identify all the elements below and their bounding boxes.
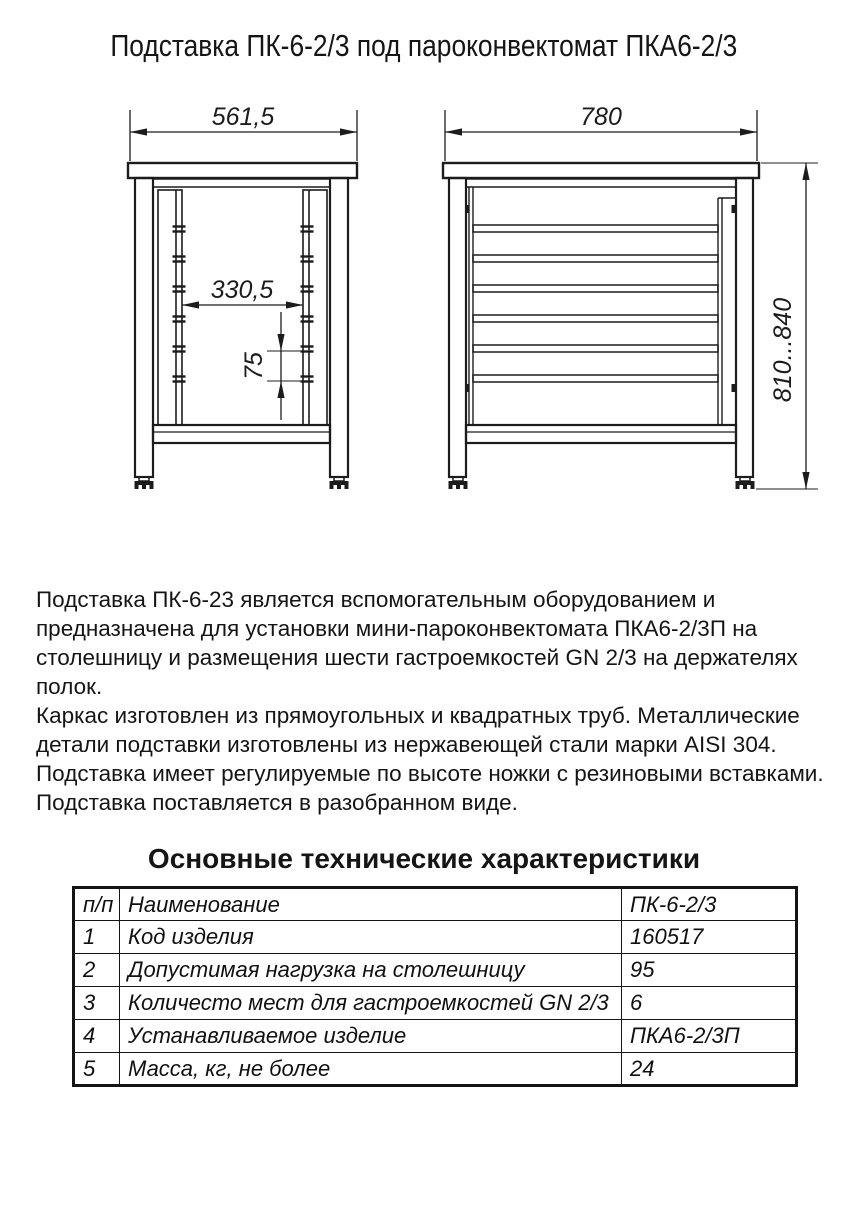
row-num: 3 (74, 987, 120, 1020)
side-under-rail (466, 179, 736, 187)
description-line: детали подставки изготовлены из нержавею… (36, 730, 848, 759)
row-name: Количесто мест для гастроемкостей GN 2/3 (120, 987, 622, 1020)
side-left-leg (449, 178, 466, 477)
row-name: Код изделия (120, 921, 622, 954)
front-shelf-channels (158, 190, 327, 425)
table-row: 1 Код изделия 160517 (74, 921, 797, 954)
row-num: 1 (74, 921, 120, 954)
front-feet (135, 477, 349, 489)
row-value: ПКА6-2/3П (622, 1020, 797, 1053)
technical-drawing: 561,5 330, (0, 90, 848, 500)
side-view-drawing: 780 (443, 103, 818, 489)
side-tabletop (443, 163, 759, 178)
side-height-label: 810...840 (769, 298, 797, 402)
row-name: Масса, кг, не более (120, 1053, 622, 1086)
row-num: 4 (74, 1020, 120, 1053)
table-row: 5 Масса, кг, не более 24 (74, 1053, 797, 1086)
side-shelf-rails (473, 225, 718, 382)
header-num: п/п (74, 888, 120, 921)
shelf-pitch-label: 75 (240, 352, 268, 380)
page-title: Подставка ПК-6-2/3 под пароконвектомат П… (0, 28, 848, 64)
page-title-text: Подставка ПК-6-2/3 под пароконвектомат П… (111, 28, 738, 64)
header-value: ПК-6-2/3 (622, 888, 797, 921)
row-num: 2 (74, 954, 120, 987)
description-line: Подставка ПК-6-23 является вспомогательн… (36, 585, 848, 614)
product-description: Подставка ПК-6-23 является вспомогательн… (36, 585, 848, 817)
specs-heading: Основные технические характеристики (0, 843, 848, 875)
description-line: полок. (36, 672, 848, 701)
front-width-label: 561,5 (212, 103, 275, 131)
table-row: 4 Устанавливаемое изделие ПКА6-2/3П (74, 1020, 797, 1053)
description-line: столешницу и размещения шести гастроемко… (36, 643, 848, 672)
row-value: 160517 (622, 921, 797, 954)
row-value: 6 (622, 987, 797, 1020)
front-view-drawing: 561,5 330, (128, 103, 357, 489)
row-name: Допустимая нагрузка на столешницу (120, 954, 622, 987)
front-tabletop (128, 163, 357, 178)
side-feet (449, 477, 755, 489)
front-bottom-rail (153, 425, 330, 443)
side-depth-label: 780 (580, 103, 622, 131)
front-left-leg (135, 178, 153, 477)
header-name: Наименование (120, 888, 622, 921)
description-line: Подставка поставляется в разобранном вид… (36, 788, 848, 817)
description-line: Каркас изготовлен из прямоугольных и ква… (36, 701, 848, 730)
table-row: 2 Допустимая нагрузка на столешницу 95 (74, 954, 797, 987)
row-value: 24 (622, 1053, 797, 1086)
specs-table: п/п Наименование ПК-6-2/3 1 Код изделия … (72, 886, 798, 1087)
front-right-leg (330, 178, 348, 477)
table-header-row: п/п Наименование ПК-6-2/3 (74, 888, 797, 921)
side-inner-frame (469, 187, 736, 425)
row-value: 95 (622, 954, 797, 987)
front-under-rail (153, 179, 330, 187)
side-bottom-rail (466, 425, 736, 443)
table-row: 3 Количесто мест для гастроемкостей GN 2… (74, 987, 797, 1020)
description-line: Подставка имеет регулируемые по высоте н… (36, 759, 848, 788)
front-inner-width-label: 330,5 (211, 276, 274, 304)
row-name: Устанавливаемое изделие (120, 1020, 622, 1053)
side-right-leg (736, 178, 753, 477)
dim-shelf-pitch (267, 312, 306, 420)
side-rivets (466, 205, 735, 392)
description-line: предназначена для установки мини-парокон… (36, 614, 848, 643)
row-num: 5 (74, 1053, 120, 1086)
